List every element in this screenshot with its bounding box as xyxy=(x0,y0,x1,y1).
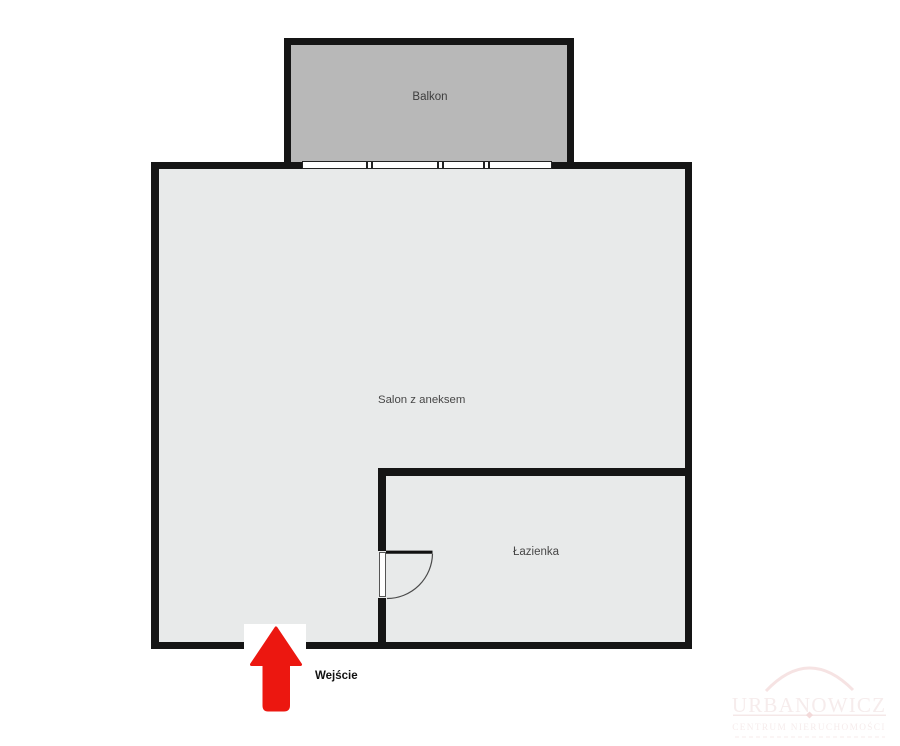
svg-text:CENTRUM NIERUCHOMOŚCI: CENTRUM NIERUCHOMOŚCI xyxy=(732,721,886,733)
